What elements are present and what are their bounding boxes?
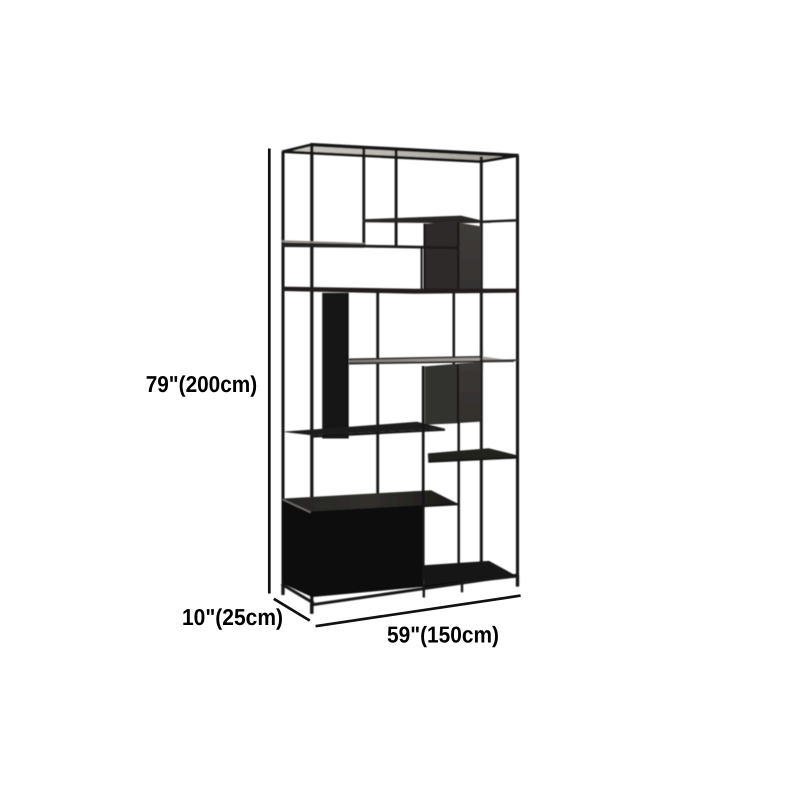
svg-text:10"(25cm): 10"(25cm) bbox=[182, 604, 283, 630]
svg-text:79"(200cm): 79"(200cm) bbox=[146, 371, 258, 397]
svg-text:59"(150cm): 59"(150cm) bbox=[387, 621, 499, 647]
